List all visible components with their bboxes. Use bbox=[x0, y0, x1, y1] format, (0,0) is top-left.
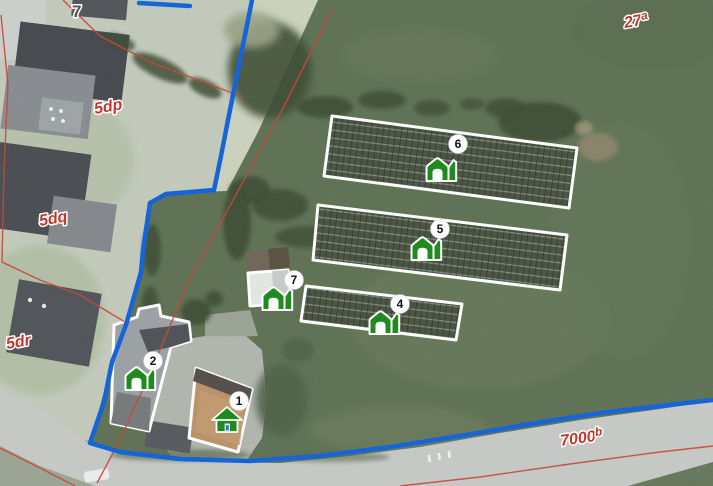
barn-icon bbox=[427, 158, 457, 181]
marker-number: 4 bbox=[397, 297, 404, 311]
map-viewport[interactable]: 7 5dp 5dq 5dr 27a 7000b 1 2 4 5 bbox=[0, 0, 713, 486]
barn-icon bbox=[126, 367, 156, 390]
marker-number: 2 bbox=[150, 354, 157, 368]
marker-number: 1 bbox=[236, 394, 243, 408]
marker-number: 6 bbox=[455, 137, 462, 151]
marker-number: 7 bbox=[291, 273, 298, 287]
property-boundary-line-top bbox=[139, 3, 190, 6]
barn-icon bbox=[412, 237, 442, 260]
barn-icon bbox=[370, 311, 400, 334]
barn-icon bbox=[263, 287, 293, 310]
marker-number: 5 bbox=[437, 222, 444, 236]
house-number-label: 7 bbox=[72, 2, 81, 21]
